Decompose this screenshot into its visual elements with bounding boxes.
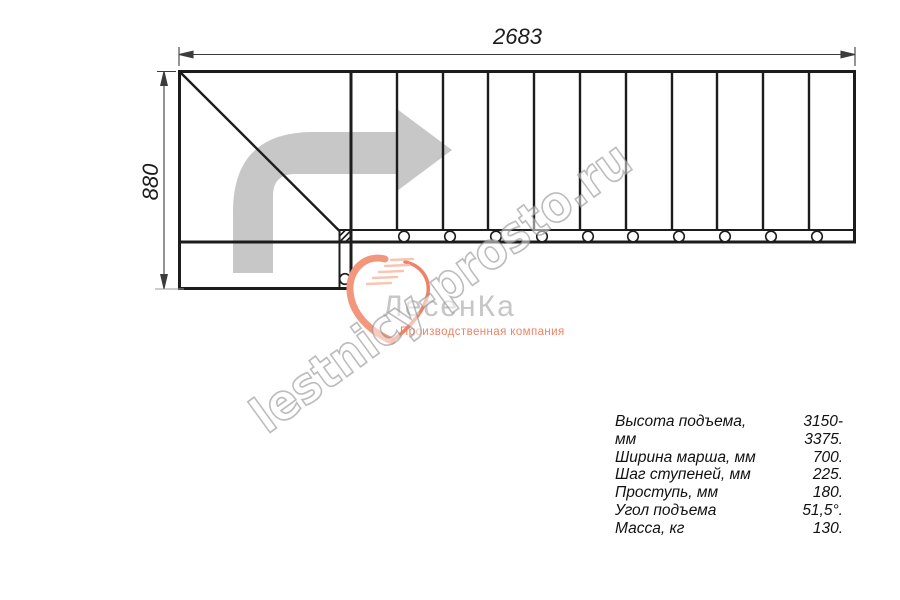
spec-table: Высота подъема, мм 3150-3375. Ширина мар… <box>615 413 843 538</box>
fastener-circle <box>720 231 731 242</box>
fastener-circle <box>399 231 410 242</box>
spec-value: 3150-3375. <box>767 413 843 449</box>
logo-brand-text: ЛесенКа <box>383 290 516 324</box>
fastener-circle <box>628 231 639 242</box>
height-dimension-label: 880 <box>138 164 164 201</box>
fastener-circle <box>812 231 823 242</box>
dim-arrow-up-icon <box>161 72 168 86</box>
spec-row: Угол подъема 51,5°. <box>615 502 843 520</box>
spec-row: Масса, кг 130. <box>615 520 843 538</box>
direction-arrow-icon <box>233 109 452 273</box>
spec-value: 51,5°. <box>802 502 843 520</box>
spec-row: Проступь, мм 180. <box>615 484 843 502</box>
width-dimension-label: 2683 <box>460 24 575 50</box>
spec-label: Шаг ступеней, мм <box>615 466 751 484</box>
step-lines <box>397 72 809 231</box>
spec-value: 180. <box>813 484 843 502</box>
spec-label: Проступь, мм <box>615 484 718 502</box>
dim-arrow-right-icon <box>841 51 855 58</box>
hatch-marker <box>340 230 352 242</box>
dim-arrow-left-icon <box>179 51 193 58</box>
spec-value: 225. <box>813 466 843 484</box>
spec-row: Высота подъема, мм 3150-3375. <box>615 413 843 449</box>
spec-label: Угол подъема <box>615 502 716 520</box>
spec-label: Ширина марша, мм <box>615 449 756 467</box>
spec-row: Шаг ступеней, мм 225. <box>615 466 843 484</box>
fastener-circle <box>491 231 502 242</box>
spec-label: Высота подъема, мм <box>615 413 767 449</box>
fastener-circle <box>674 231 685 242</box>
spec-value: 700. <box>813 449 843 467</box>
fastener-circle <box>583 231 594 242</box>
fastener-circle <box>537 231 548 242</box>
spec-row: Ширина марша, мм 700. <box>615 449 843 467</box>
fastener-circle <box>445 231 456 242</box>
spec-value: 130. <box>813 520 843 538</box>
company-logo: ЛесенКа Производственная компания <box>340 250 580 350</box>
fastener-circle <box>766 231 777 242</box>
spec-label: Масса, кг <box>615 520 684 538</box>
logo-tagline-text: Производственная компания <box>400 326 565 338</box>
dim-arrow-down-icon <box>161 275 168 289</box>
stair-drawing-page: 2683 880 ЛесенКа Производственная компан… <box>0 0 900 600</box>
